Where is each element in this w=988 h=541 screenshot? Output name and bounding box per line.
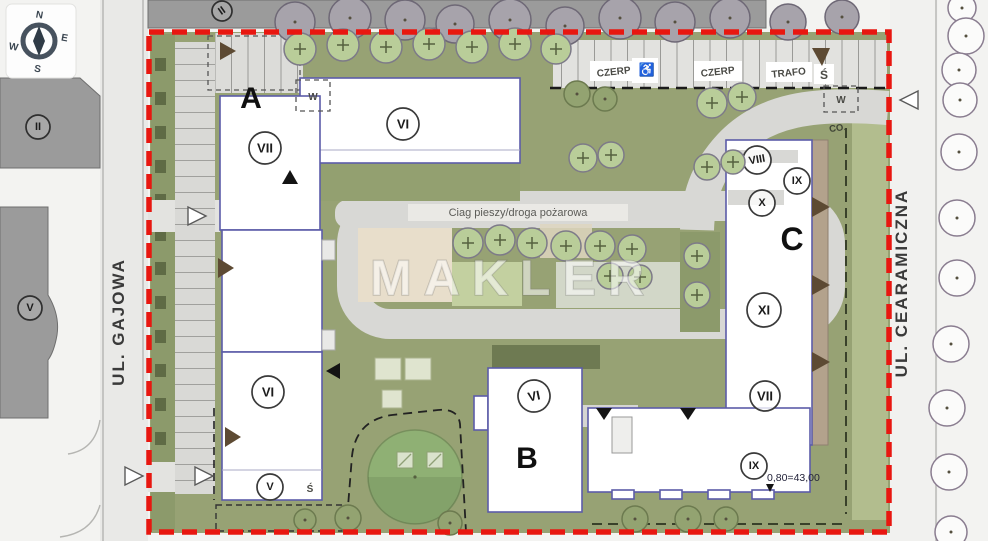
tree-icon: [929, 390, 965, 426]
accessible-parking-icon: ♿: [639, 62, 655, 77]
building-c-letter: C: [780, 221, 803, 257]
svg-text:V: V: [26, 302, 34, 314]
s-label-top: Ś: [820, 67, 828, 82]
tree-icon: [935, 516, 967, 541]
svg-text:UL. CEARAMICZNA: UL. CEARAMICZNA: [892, 189, 911, 378]
svg-text:VI: VI: [397, 117, 409, 132]
tree-icon: [939, 200, 975, 236]
tree-icon: [825, 0, 859, 34]
site-plan: W W A B C VII VI VI V Ś VI VIII IX X XI …: [0, 0, 988, 541]
tree-icon: [370, 31, 402, 63]
floor-label-c-x: X: [749, 190, 775, 216]
tree-icon: [294, 509, 316, 531]
svg-text:IX: IX: [792, 175, 803, 187]
floor-label-a-vii: VII: [249, 132, 281, 164]
tree-icon: [941, 134, 977, 170]
tree-icon: [684, 282, 710, 308]
svg-text:UL. GAJOWA: UL. GAJOWA: [109, 258, 128, 386]
floor-label-a-v: V: [257, 474, 283, 500]
floor-label-c-xi: XI: [747, 293, 781, 327]
s-label-a: Ś: [307, 482, 314, 495]
svg-text:VII: VII: [257, 141, 273, 156]
terrace-strip-left: [151, 34, 175, 530]
tree-icon: [335, 505, 361, 531]
level-note: 0,80=43,00: [767, 472, 820, 484]
tree-icon: [942, 53, 976, 87]
tree-icon: [694, 154, 720, 180]
tree-icon: [564, 81, 590, 107]
floor-label-c-ix-top: IX: [784, 168, 810, 194]
parking-left: [175, 42, 215, 500]
tree-icon: [598, 142, 624, 168]
co-label: CO.: [829, 122, 847, 135]
tree-icon: [948, 18, 984, 54]
tree-icon: [931, 454, 967, 490]
tree-icon: [728, 83, 756, 111]
existing-label-left-ii: II: [26, 115, 50, 139]
tree-icon: [655, 2, 695, 42]
floor-label-a-mid-vi: VI: [252, 376, 284, 408]
tree-icon: [541, 34, 571, 64]
floor-label-c-vii: VII: [750, 381, 780, 411]
svg-text:IX: IX: [749, 460, 760, 472]
svg-text:X: X: [758, 197, 766, 209]
tree-icon: [622, 506, 648, 532]
w-label-right: W: [836, 95, 846, 106]
tree-icon: [939, 260, 975, 296]
tree-icon: [943, 83, 977, 117]
tree-icon: [684, 243, 710, 269]
parking-top: [550, 40, 887, 88]
svg-text:XI: XI: [758, 303, 770, 318]
tree-icon: [697, 88, 727, 118]
tree-icon: [721, 150, 745, 174]
path-label: Ciag pieszy/droga pożarowa: [408, 204, 628, 221]
building-b-letter: B: [516, 442, 538, 475]
tree-icon: [456, 31, 488, 63]
floor-label-c-ix-bottom: IX: [741, 453, 767, 479]
lawn-strip-right: [852, 120, 888, 520]
watermark: MAKLER: [370, 250, 656, 306]
svg-text:Ciag pieszy/droga pożarowa: Ciag pieszy/droga pożarowa: [449, 207, 589, 219]
tree-icon: [933, 326, 969, 362]
tree-icon: [714, 507, 738, 531]
w-label-left: W: [308, 92, 318, 103]
street-name-right: UL. CEARAMICZNA: [892, 189, 911, 378]
tree-icon: [593, 87, 617, 111]
street-name-left: UL. GAJOWA: [109, 258, 128, 386]
svg-text:V: V: [266, 481, 274, 493]
compass-rose: N E S W: [6, 4, 76, 78]
building-a-letter: A: [240, 82, 262, 115]
tree-icon: [569, 144, 597, 172]
tree-canopy-large: [368, 430, 462, 524]
svg-text:II: II: [35, 121, 41, 133]
svg-text:VI: VI: [262, 385, 274, 400]
svg-text:VII: VII: [757, 389, 773, 404]
existing-label-left-v: V: [18, 296, 42, 320]
floor-label-a-wing-vi: VI: [387, 108, 419, 140]
tree-icon: [675, 506, 701, 532]
tree-icon: [284, 33, 316, 65]
